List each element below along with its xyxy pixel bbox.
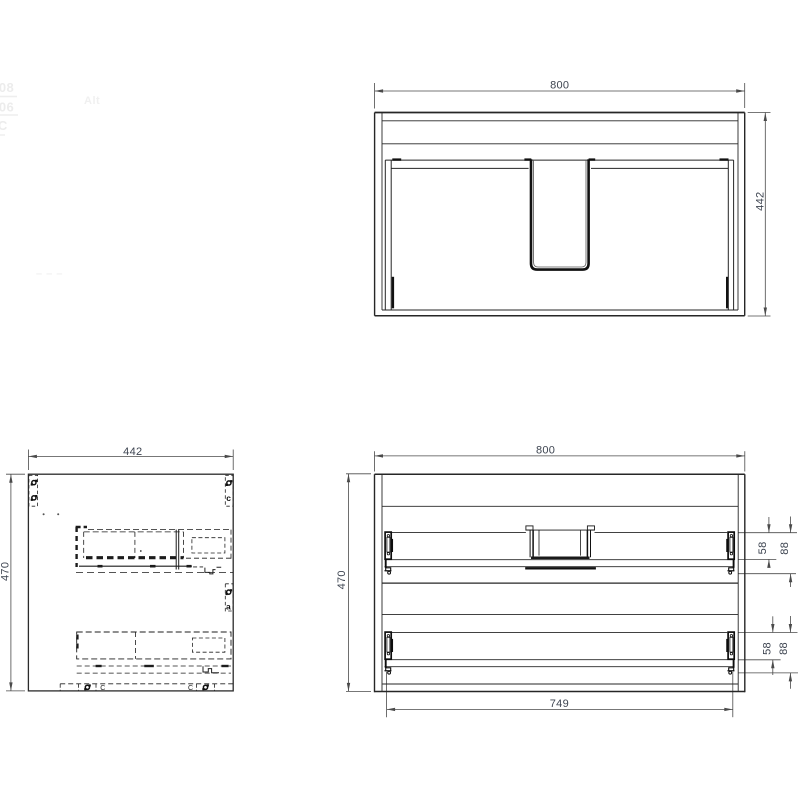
svg-text:-C: -C bbox=[0, 118, 8, 133]
svg-text:470: 470 bbox=[336, 570, 348, 589]
svg-text:800: 800 bbox=[536, 445, 555, 457]
svg-text:88: 88 bbox=[778, 642, 790, 655]
svg-text:-08: -08 bbox=[0, 80, 14, 95]
svg-text:749: 749 bbox=[550, 698, 569, 710]
svg-text:470: 470 bbox=[0, 562, 11, 581]
svg-text:58: 58 bbox=[761, 642, 773, 655]
svg-text:a: a bbox=[226, 602, 231, 612]
svg-text:C: C bbox=[100, 685, 105, 692]
svg-text:442: 442 bbox=[123, 446, 142, 458]
svg-text:C: C bbox=[188, 685, 193, 692]
svg-text:– – –: – – – bbox=[36, 268, 63, 280]
svg-text:442: 442 bbox=[754, 192, 766, 211]
svg-text:58: 58 bbox=[757, 541, 769, 554]
svg-text:c: c bbox=[226, 493, 231, 503]
svg-text:-06: -06 bbox=[0, 100, 14, 115]
svg-text:800: 800 bbox=[550, 79, 569, 91]
svg-text:Alt: Alt bbox=[84, 95, 100, 107]
svg-text:88: 88 bbox=[779, 542, 791, 555]
